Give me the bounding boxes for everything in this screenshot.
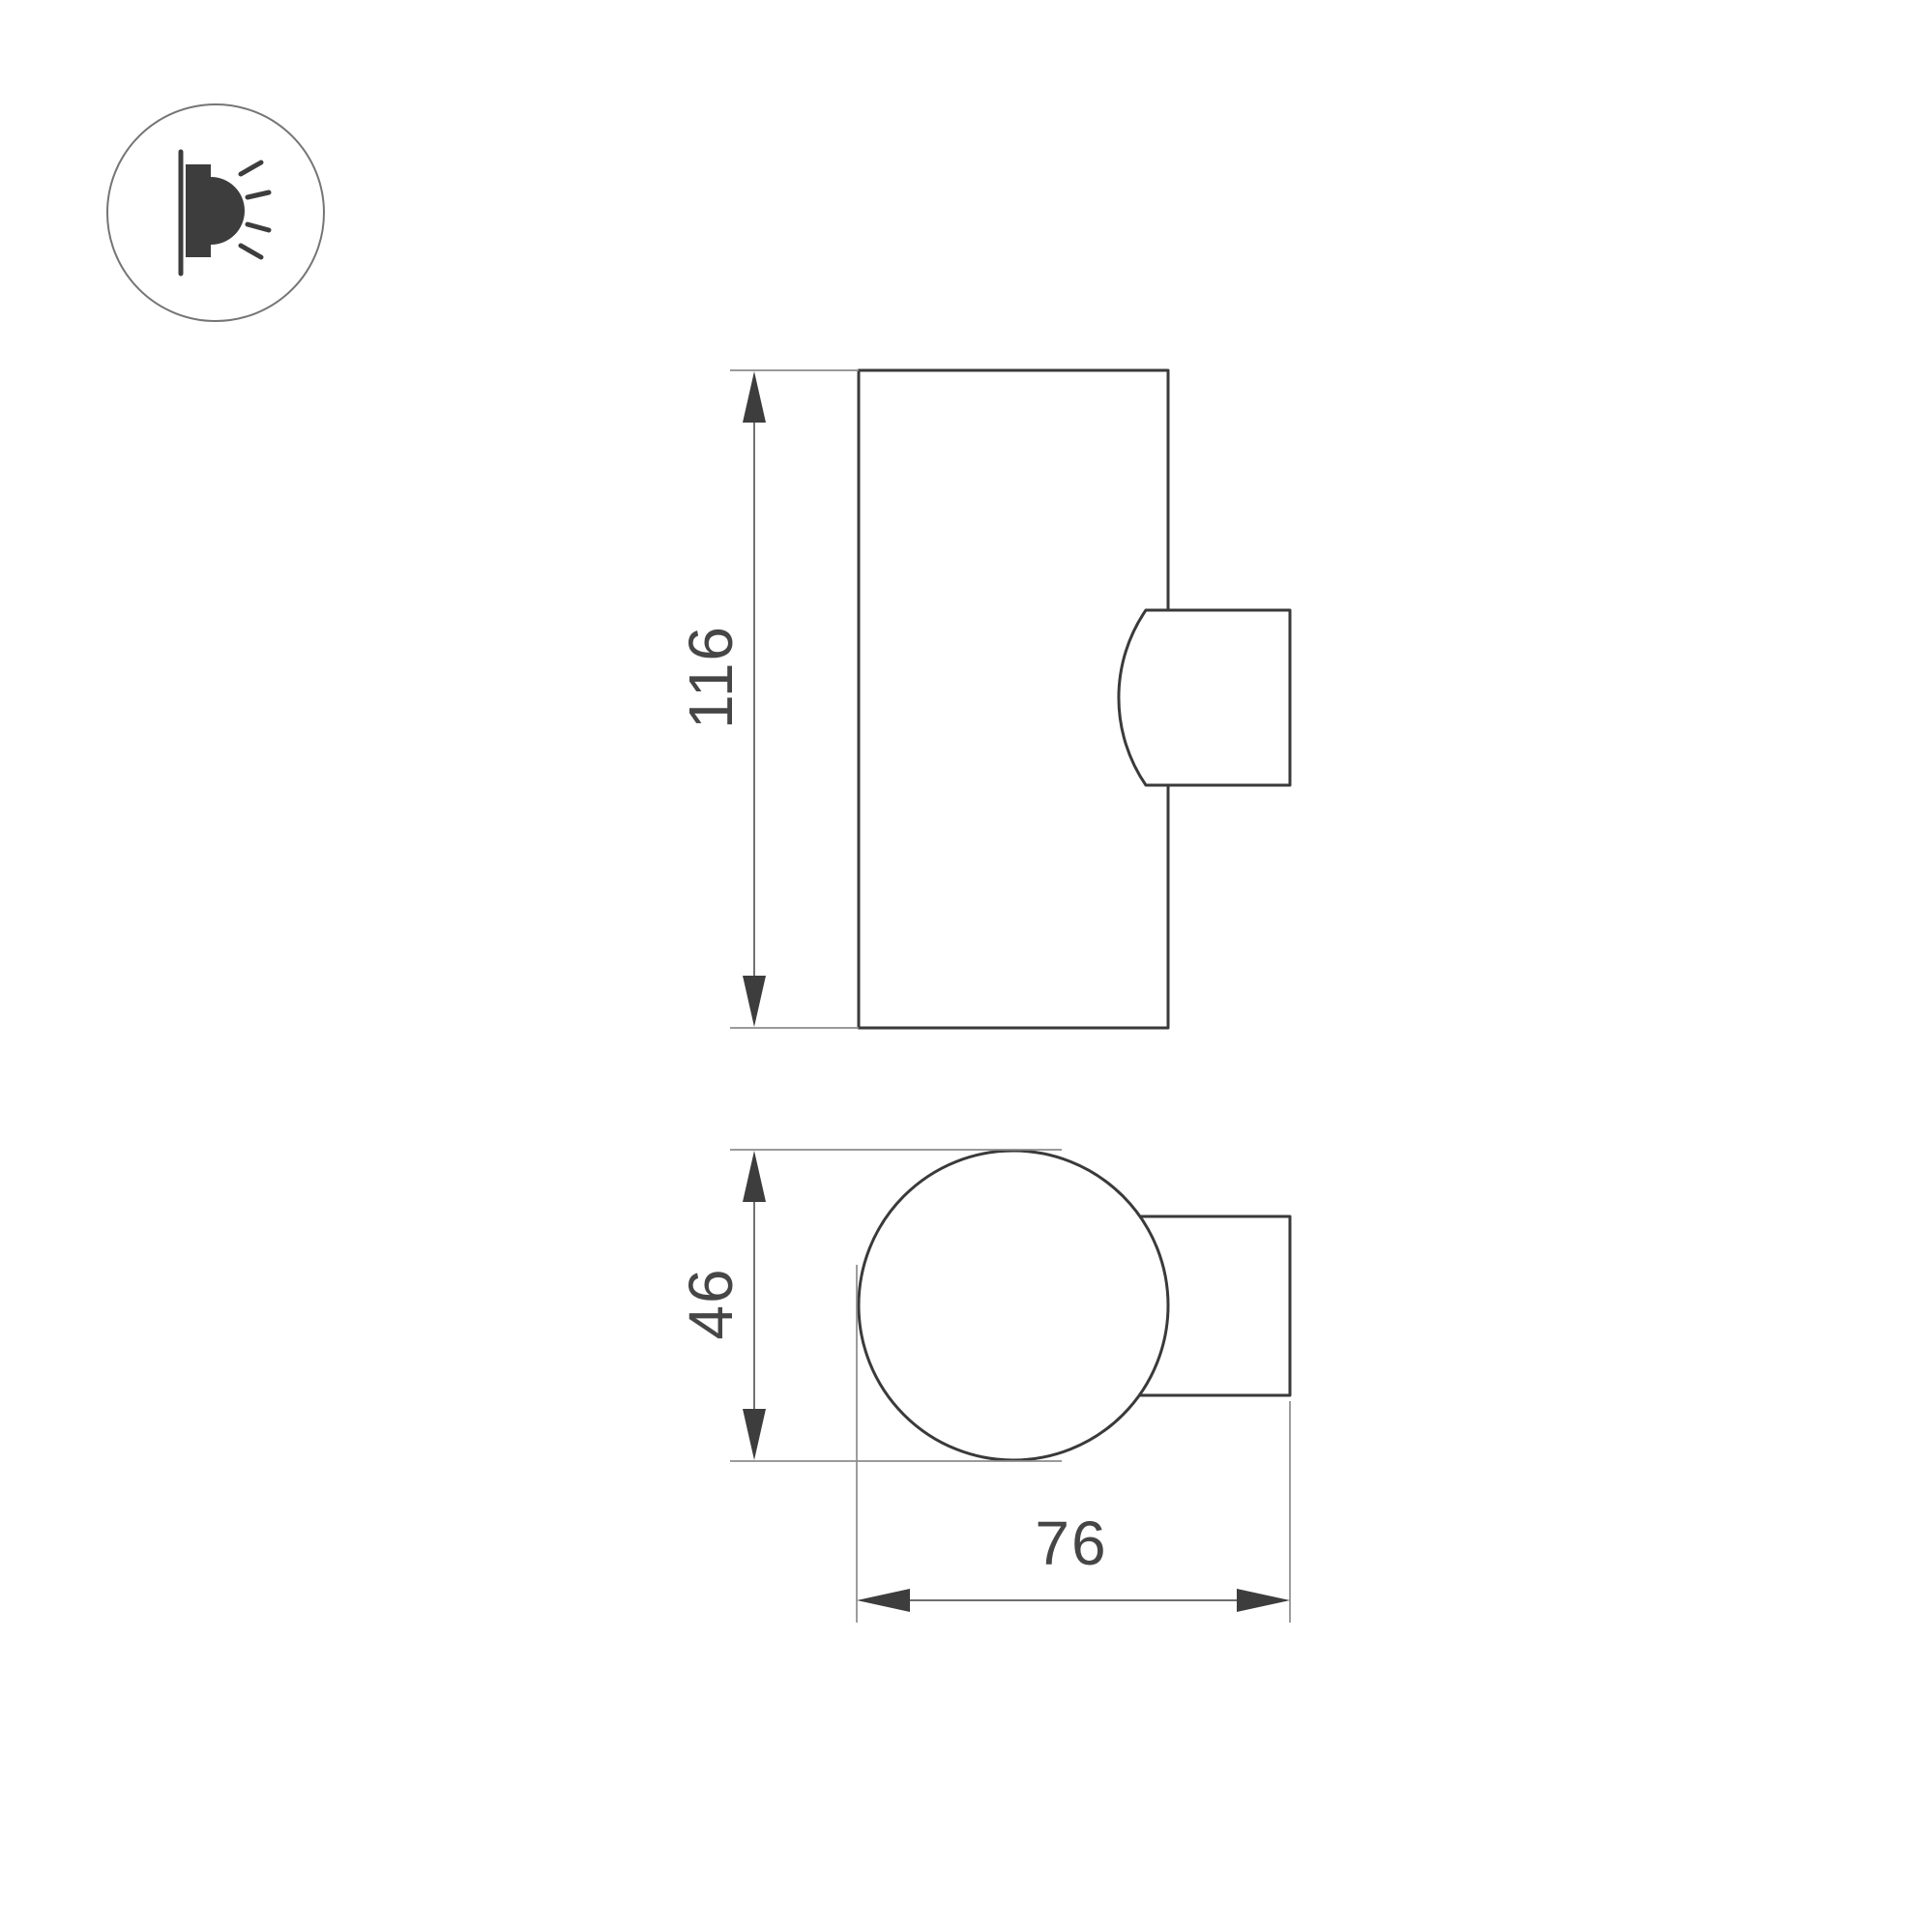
depth-arrow-left	[857, 1589, 910, 1612]
front-view-body-outline	[859, 370, 1168, 1028]
depth-dimension: 76	[857, 1265, 1290, 1623]
icon-light-rays	[241, 162, 269, 257]
drawing-canvas: 116 46 76	[0, 0, 1932, 1932]
depth-arrow-right	[1237, 1589, 1290, 1612]
top-view	[859, 1151, 1290, 1460]
icon-light-dome	[211, 177, 245, 245]
height-dimension: 116	[676, 370, 859, 1028]
front-view-bracket	[1119, 610, 1290, 785]
icon-ray-2	[248, 192, 269, 197]
diameter-dimension-label: 46	[676, 1267, 746, 1339]
icon-ray-3	[248, 224, 269, 230]
technical-drawing: 116 46 76	[0, 0, 1932, 1932]
height-arrow-up	[743, 371, 766, 423]
front-view	[859, 370, 1290, 1028]
diameter-arrow-down	[743, 1409, 766, 1460]
depth-dimension-label: 76	[1035, 1508, 1107, 1578]
top-view-body-circle	[859, 1151, 1168, 1460]
height-dimension-label: 116	[676, 625, 746, 729]
icon-ray-1	[241, 162, 261, 174]
diameter-arrow-up	[743, 1151, 766, 1202]
height-arrow-down	[743, 976, 766, 1027]
icon-ray-4	[241, 246, 261, 257]
top-view-bracket	[1140, 1216, 1290, 1395]
icon-lamp-body	[186, 164, 211, 257]
wall-light-emission-icon	[107, 104, 324, 321]
diameter-dimension: 46	[676, 1150, 1062, 1461]
